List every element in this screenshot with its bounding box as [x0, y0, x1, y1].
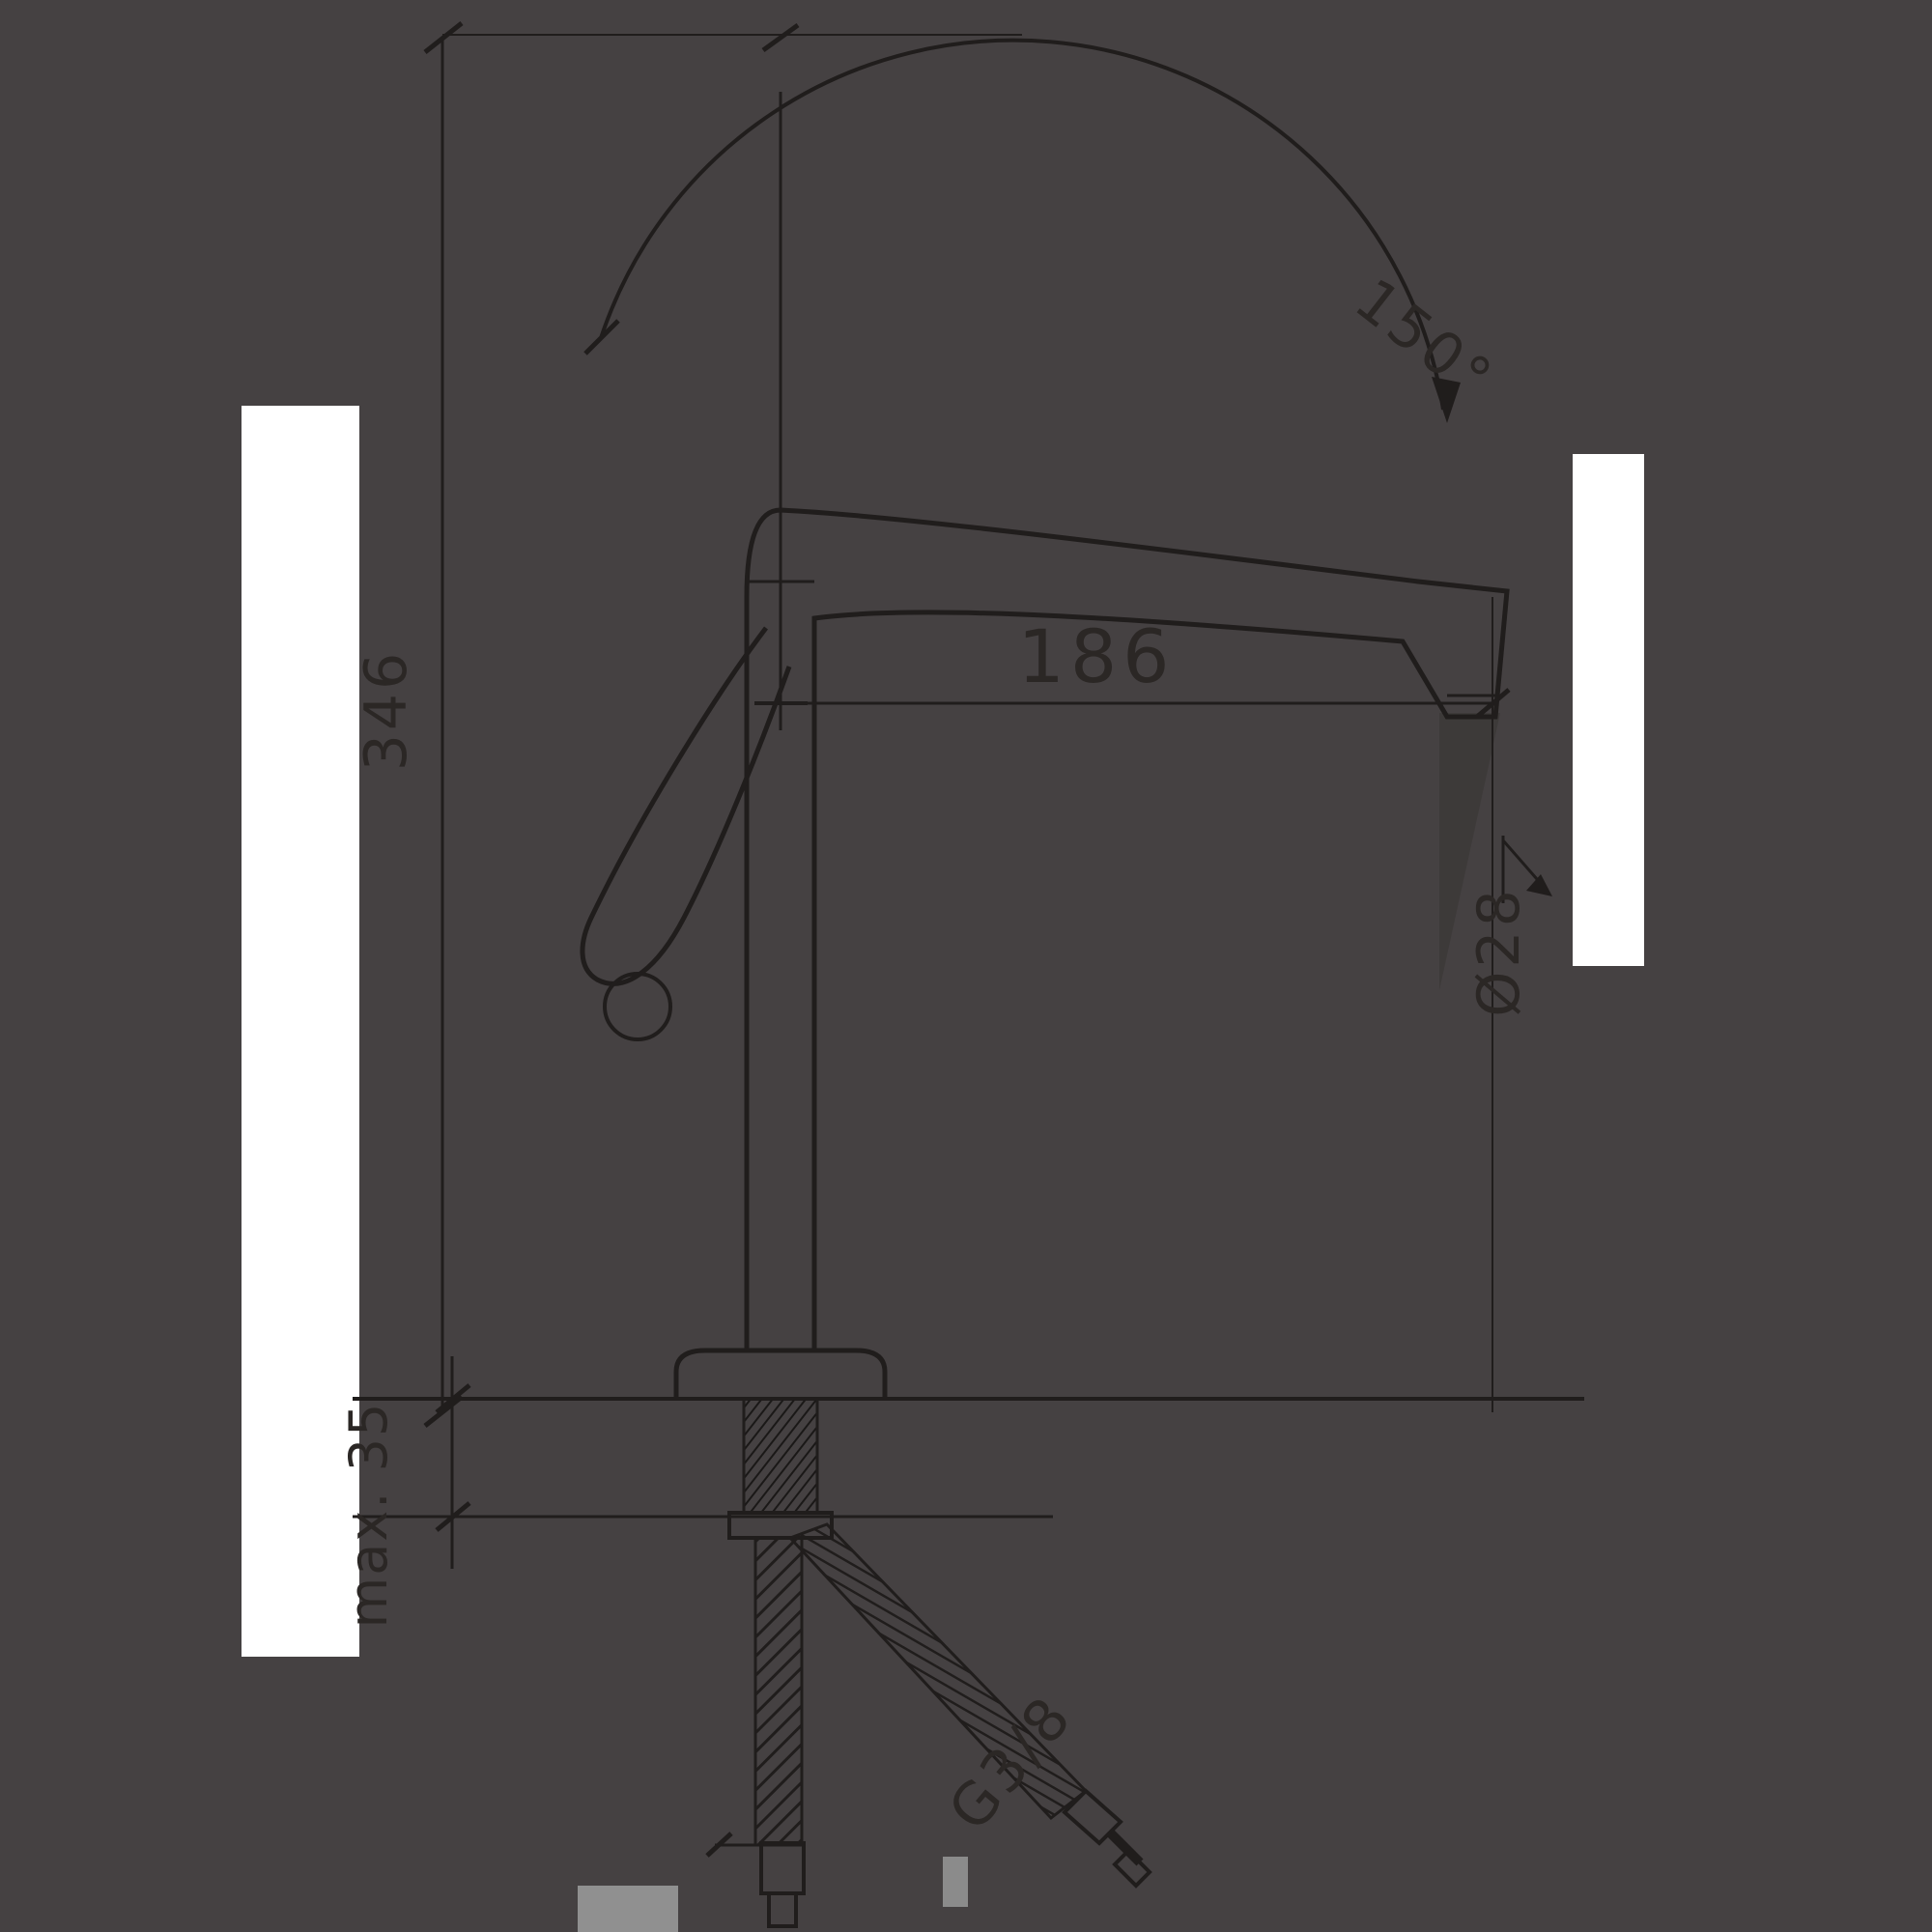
dimension-label-outlet-diameter: Ø28	[1465, 886, 1533, 1017]
artifact-white-band-right	[1573, 454, 1644, 966]
base-escutcheon	[676, 1350, 885, 1399]
mounting-shank	[744, 1399, 817, 1513]
faucet-technical-drawing: 186 346 150° Ø28 max. 35 G3/8	[0, 0, 1932, 1932]
hose-nipple-vertical	[769, 1893, 796, 1926]
mounting-assembly	[729, 1399, 1150, 1926]
artifact-gray-patch-bottom-left	[578, 1886, 678, 1932]
hose-fitting-vertical	[761, 1843, 804, 1893]
dimension-labels: 186 346 150° Ø28 max. 35 G3/8	[338, 266, 1533, 1843]
lever-handle	[582, 628, 789, 983]
dimension-label-spout-reach: 186	[1017, 613, 1175, 699]
swivel-arc	[601, 41, 1443, 410]
axis-tick-top	[763, 25, 798, 50]
countertop	[353, 1399, 1584, 1517]
drawing-canvas: 186 346 150° Ø28 max. 35 G3/8	[0, 0, 1932, 1932]
hose-end-cap-diagonal	[1115, 1851, 1150, 1886]
supply-hose-vertical	[755, 1538, 802, 1845]
dimension-label-swivel-angle: 150°	[1343, 266, 1507, 414]
lever-knob	[605, 974, 670, 1039]
dimension-label-deck-thickness: max. 35	[338, 1402, 399, 1629]
artifact-gray-patch-hose	[943, 1857, 968, 1907]
dimension-label-total-height: 346	[353, 649, 420, 772]
swivel-arc-tick-left	[585, 321, 618, 354]
